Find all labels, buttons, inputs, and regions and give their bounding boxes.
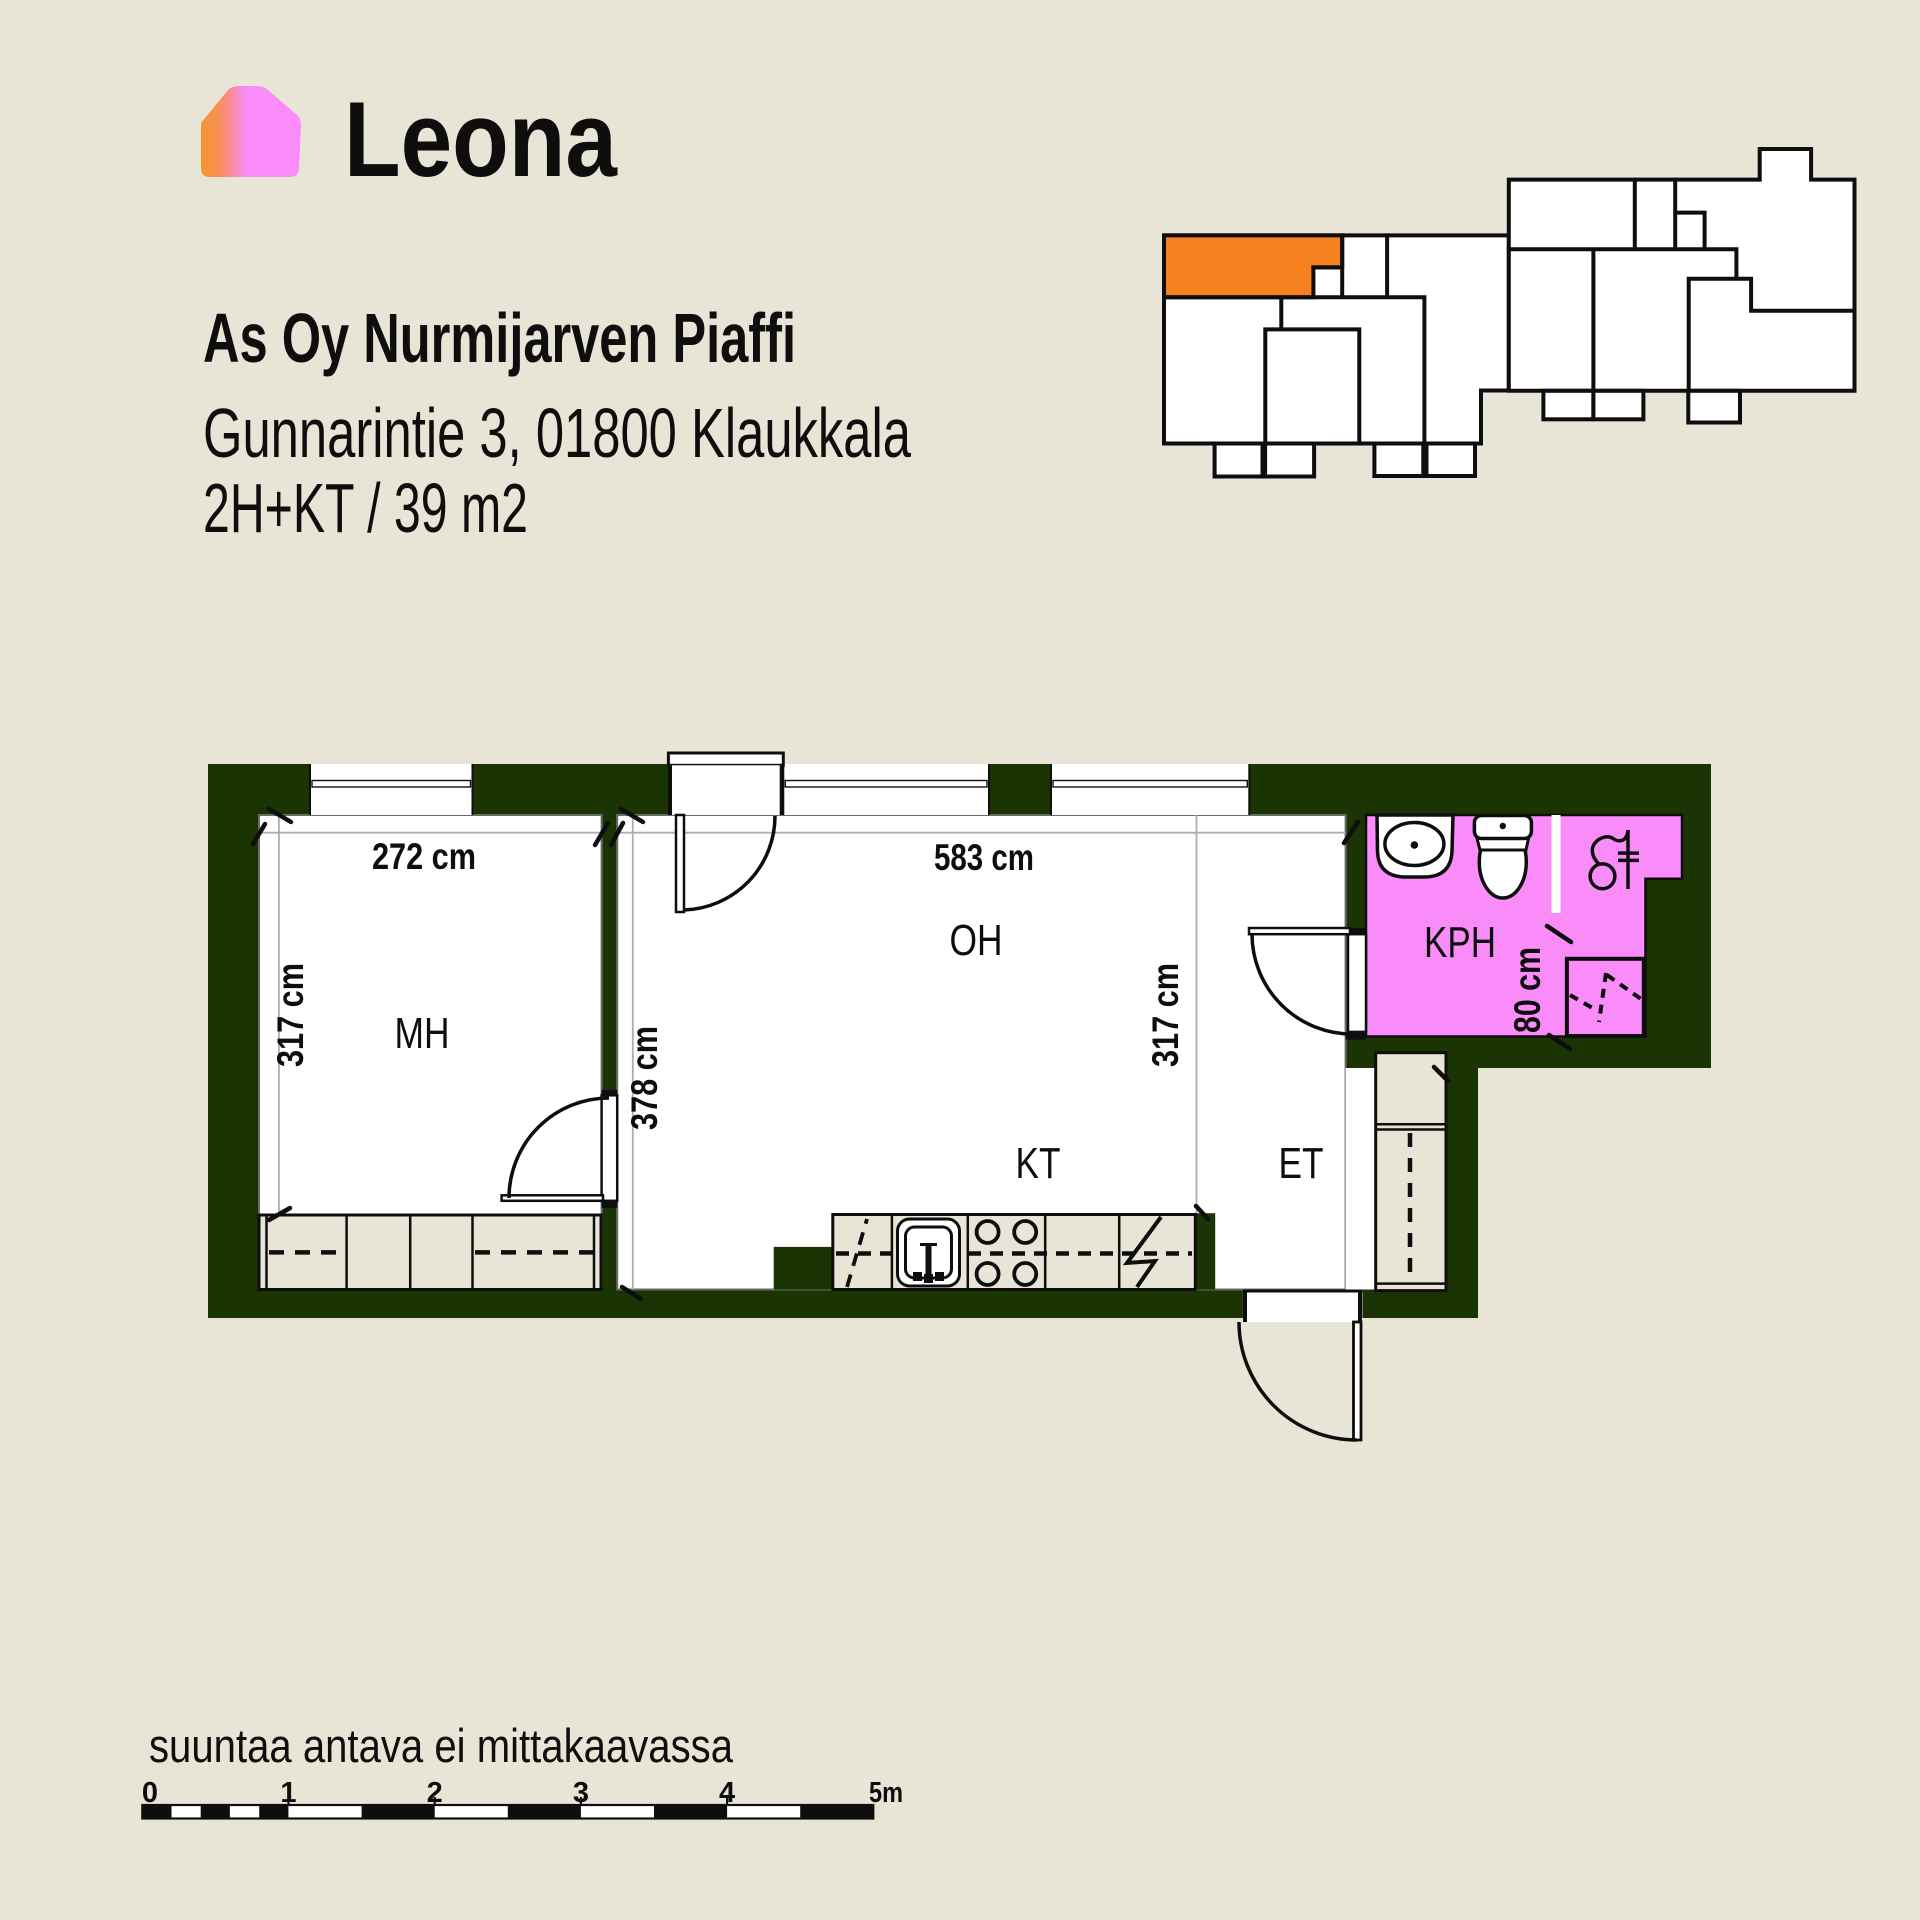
svg-text:KPH: KPH (1424, 918, 1496, 967)
svg-text:0: 0 (142, 1777, 158, 1809)
svg-text:KT: KT (1016, 1139, 1061, 1188)
svg-text:MH: MH (395, 1009, 450, 1058)
svg-text:378 cm: 378 cm (624, 1026, 665, 1130)
svg-text:suuntaa antava ei mittakaavass: suuntaa antava ei mittakaavassa (149, 1719, 734, 1772)
svg-text:As Oy Nurmijarven Piaffi: As Oy Nurmijarven Piaffi (203, 299, 796, 377)
svg-text:Leona: Leona (344, 79, 618, 199)
svg-text:ET: ET (1279, 1139, 1324, 1188)
svg-text:2: 2 (427, 1777, 443, 1809)
svg-text:1: 1 (280, 1777, 296, 1809)
svg-text:2H+KT / 39 m2: 2H+KT / 39 m2 (203, 469, 528, 547)
svg-text:317 cm: 317 cm (1145, 963, 1186, 1067)
svg-text:Gunnarintie 3, 01800 Klaukkala: Gunnarintie 3, 01800 Klaukkala (203, 394, 911, 472)
svg-text:4: 4 (719, 1777, 735, 1809)
svg-text:317 cm: 317 cm (270, 963, 311, 1067)
svg-text:272 cm: 272 cm (372, 836, 476, 877)
svg-text:5m: 5m (869, 1777, 903, 1809)
svg-text:80 cm: 80 cm (1507, 947, 1548, 1033)
svg-text:OH: OH (950, 916, 1003, 965)
svg-text:3: 3 (573, 1777, 589, 1809)
svg-text:583 cm: 583 cm (934, 837, 1034, 878)
